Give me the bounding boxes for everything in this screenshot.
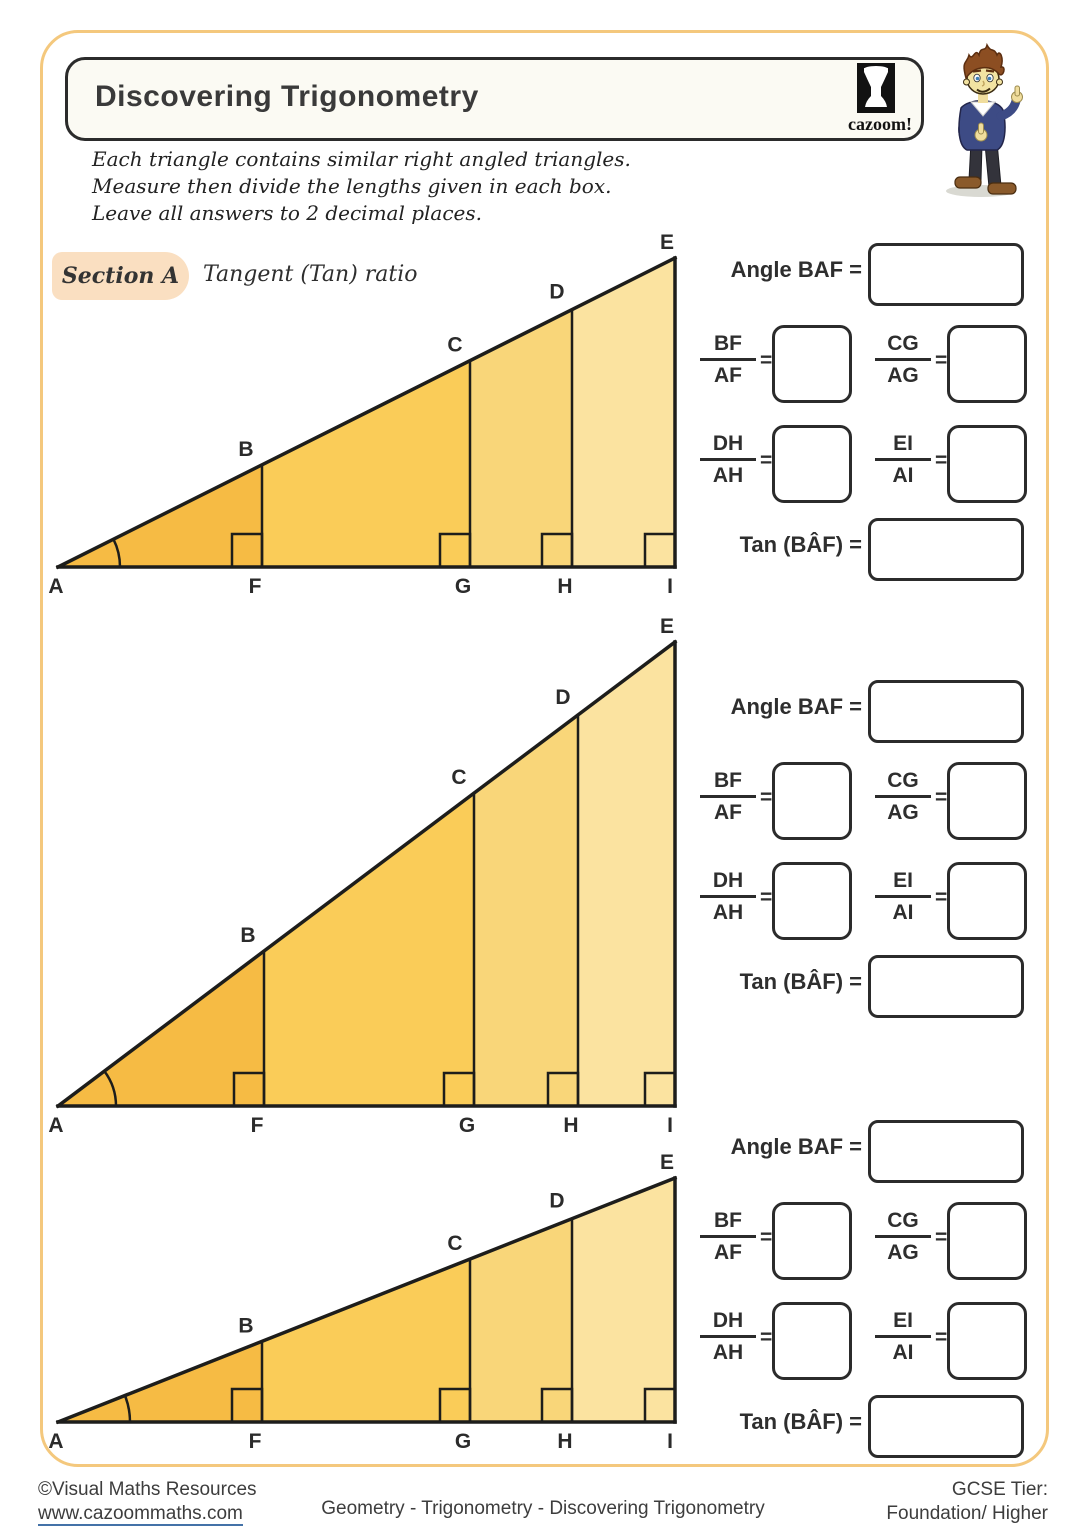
- svg-text:C: C: [447, 334, 462, 357]
- answer-group-2: Angle BAF = BF AF = CG AG = DH AH = EI A…: [690, 672, 1035, 1022]
- svg-text:D: D: [555, 686, 570, 709]
- fraction-dh-ah: DH AH: [700, 1308, 756, 1366]
- fraction-bf-af: BF AF: [700, 1208, 756, 1266]
- svg-text:E: E: [660, 231, 674, 254]
- equals-sign: =: [935, 886, 947, 910]
- tan-baf-answer-box[interactable]: [868, 1395, 1024, 1458]
- cazoom-logo: cazoom!: [838, 62, 922, 136]
- cg-ag-answer-box[interactable]: [947, 762, 1027, 840]
- cg-ag-answer-box[interactable]: [947, 1202, 1027, 1280]
- fraction-bf-af: BF AF: [700, 768, 756, 826]
- tan-baf-answer-box[interactable]: [868, 518, 1024, 581]
- svg-text:E: E: [660, 1151, 674, 1174]
- equals-sign: =: [760, 886, 772, 910]
- svg-text:H: H: [563, 1114, 578, 1137]
- svg-text:F: F: [251, 1114, 264, 1137]
- tan-baf-label: Tan (BÂF) =: [690, 1409, 862, 1435]
- equals-sign: =: [935, 1326, 947, 1350]
- cazoom-drum-icon: [857, 63, 895, 113]
- bf-af-answer-box[interactable]: [772, 1202, 852, 1280]
- svg-text:I: I: [667, 575, 673, 598]
- instruction-line-1: Each triangle contains similar right ang…: [92, 146, 712, 173]
- svg-text:I: I: [667, 1430, 673, 1453]
- triangle-diagram-3: AFGHIBCDE: [40, 1150, 700, 1450]
- tier-label: GCSE Tier:: [738, 1478, 1048, 1502]
- fraction-cg-ag: CG AG: [875, 768, 931, 826]
- ei-ai-answer-box[interactable]: [947, 862, 1027, 940]
- svg-text:C: C: [451, 766, 466, 789]
- tan-baf-label: Tan (BÂF) =: [690, 532, 862, 558]
- instruction-line-2: Measure then divide the lengths given in…: [92, 173, 712, 200]
- cazoom-logo-text: cazoom!: [838, 114, 922, 135]
- instruction-line-3: Leave all answers to 2 decimal places.: [92, 200, 712, 227]
- fraction-dh-ah: DH AH: [700, 431, 756, 489]
- fraction-ei-ai: EI AI: [875, 868, 931, 926]
- fraction-cg-ag: CG AG: [875, 1208, 931, 1266]
- triangle-diagram-2: AFGHIBCDE: [40, 610, 700, 1140]
- title-bar: Discovering Trigonometry cazoom!: [65, 57, 924, 141]
- page-title: Discovering Trigonometry: [95, 80, 479, 114]
- worksheet-instructions: Each triangle contains similar right ang…: [92, 146, 712, 227]
- svg-text:H: H: [557, 575, 572, 598]
- fraction-cg-ag: CG AG: [875, 331, 931, 389]
- mascot-illustration: [933, 40, 1033, 200]
- svg-text:A: A: [48, 575, 63, 598]
- dh-ah-answer-box[interactable]: [772, 862, 852, 940]
- ei-ai-answer-box[interactable]: [947, 1302, 1027, 1380]
- angle-baf-label: Angle BAF =: [690, 1134, 862, 1160]
- footer-tier-block: GCSE Tier: Foundation/ Higher: [738, 1478, 1048, 1526]
- angle-baf-label: Angle BAF =: [690, 257, 862, 283]
- tan-baf-label: Tan (BÂF) =: [690, 969, 862, 995]
- cg-ag-answer-box[interactable]: [947, 325, 1027, 403]
- svg-text:B: B: [238, 1314, 253, 1337]
- fraction-ei-ai: EI AI: [875, 1308, 931, 1366]
- angle-baf-label: Angle BAF =: [690, 694, 862, 720]
- equals-sign: =: [935, 349, 947, 373]
- ei-ai-answer-box[interactable]: [947, 425, 1027, 503]
- equals-sign: =: [760, 786, 772, 810]
- svg-text:B: B: [240, 924, 255, 947]
- equals-sign: =: [935, 786, 947, 810]
- svg-text:C: C: [447, 1232, 462, 1255]
- tan-baf-answer-box[interactable]: [868, 955, 1024, 1018]
- svg-text:A: A: [48, 1114, 63, 1137]
- svg-text:I: I: [667, 1114, 673, 1137]
- angle-baf-answer-box[interactable]: [868, 1120, 1024, 1183]
- svg-text:G: G: [455, 575, 471, 598]
- fraction-ei-ai: EI AI: [875, 431, 931, 489]
- equals-sign: =: [760, 349, 772, 373]
- svg-text:D: D: [549, 281, 564, 304]
- fraction-dh-ah: DH AH: [700, 868, 756, 926]
- svg-text:G: G: [455, 1430, 471, 1453]
- bf-af-answer-box[interactable]: [772, 325, 852, 403]
- svg-text:A: A: [48, 1430, 63, 1453]
- svg-text:B: B: [238, 438, 253, 461]
- answer-group-1: Angle BAF = BF AF = CG AG = DH AH = EI A…: [690, 235, 1035, 585]
- svg-text:H: H: [557, 1430, 572, 1453]
- equals-sign: =: [935, 1226, 947, 1250]
- fraction-bf-af: BF AF: [700, 331, 756, 389]
- tier-value: Foundation/ Higher: [738, 1502, 1048, 1526]
- svg-text:D: D: [549, 1190, 564, 1213]
- angle-baf-answer-box[interactable]: [868, 243, 1024, 306]
- dh-ah-answer-box[interactable]: [772, 425, 852, 503]
- svg-text:F: F: [249, 1430, 262, 1453]
- bf-af-answer-box[interactable]: [772, 762, 852, 840]
- triangle-diagram-1: AFGHIBCDE: [40, 235, 700, 615]
- equals-sign: =: [935, 449, 947, 473]
- equals-sign: =: [760, 1226, 772, 1250]
- answer-group-3: Angle BAF = BF AF = CG AG = DH AH = EI A…: [690, 1112, 1035, 1462]
- dh-ah-answer-box[interactable]: [772, 1302, 852, 1380]
- svg-text:F: F: [249, 575, 262, 598]
- equals-sign: =: [760, 449, 772, 473]
- svg-text:G: G: [459, 1114, 475, 1137]
- svg-text:E: E: [660, 615, 674, 638]
- equals-sign: =: [760, 1326, 772, 1350]
- angle-baf-answer-box[interactable]: [868, 680, 1024, 743]
